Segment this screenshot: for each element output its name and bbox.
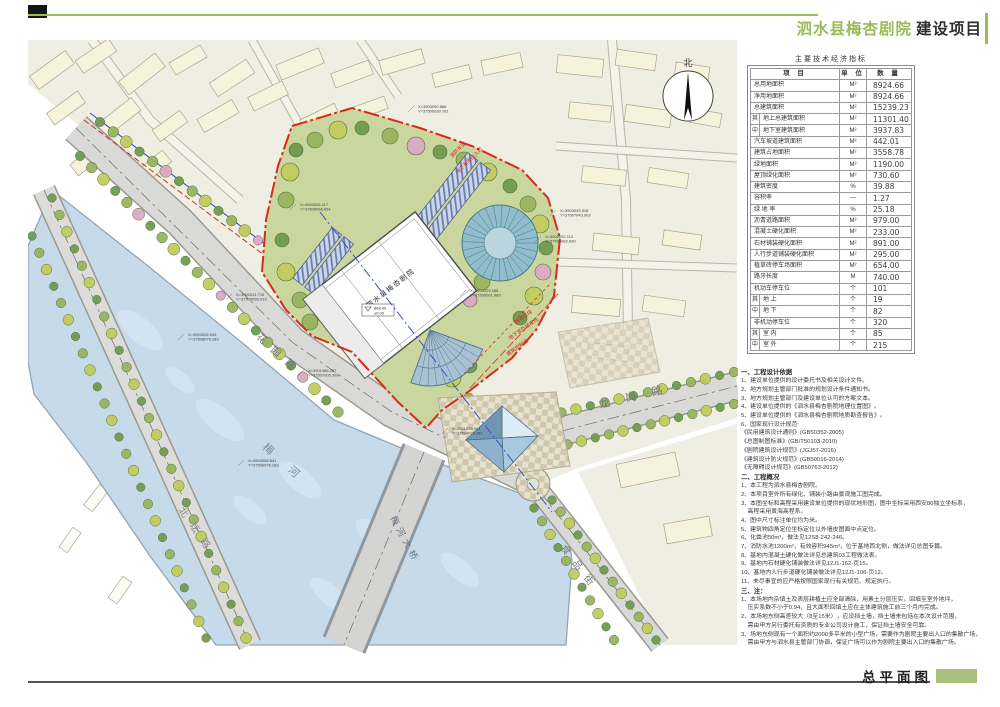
tree-icon xyxy=(530,504,539,513)
tree-icon xyxy=(180,584,189,593)
note-line: 1、本工程为泗水县梅杏剧院。 xyxy=(741,482,993,491)
table-row: 净用地面积M² 8924.66 xyxy=(751,91,912,102)
tree-icon xyxy=(144,413,154,423)
note-line: 6、化粪池50m³，做法见12S8-242-246。 xyxy=(741,534,993,543)
note-line: 3、本图坐标和高程采用建设单位提供的现状地形图，图中坐标采用西安80独立坐标系， xyxy=(741,500,993,509)
svg-text:Y=37507005.309: Y=37507005.309 xyxy=(308,373,339,378)
tree-icon xyxy=(181,256,190,265)
svg-text:Y=37506076.183: Y=37506076.183 xyxy=(248,463,279,468)
tree-icon xyxy=(78,349,88,359)
tree-icon xyxy=(187,186,198,197)
table-header-row: 项 目 单 位 数 量 xyxy=(751,69,912,80)
note-line: 5、建筑物四角定位坐标定位以外墙皮图面中点定位。 xyxy=(741,526,993,535)
tree-icon xyxy=(634,612,644,622)
item-cell: 地下室建筑面积 xyxy=(760,125,840,136)
unit-cell: M xyxy=(840,272,867,283)
unit-cell: M² xyxy=(840,136,867,147)
tree-icon xyxy=(137,483,146,492)
note-line: 需由甲方与泗水县主管部门协调，保证广场可以作为剧院主要出入口的集散广场。 xyxy=(741,639,993,648)
note-line: 7、消防水池1200m³，有效容积945m³，位于基地西北侧，做法详见总图专篇。 xyxy=(741,543,993,552)
table-row: 非机动停车位个 320 xyxy=(751,317,912,328)
tree-icon xyxy=(146,221,155,230)
building-parcel xyxy=(59,527,81,552)
col-qty: 数 量 xyxy=(867,69,912,80)
table-row: 其 室 内个 85 xyxy=(751,328,912,339)
qty-cell: 891.00 xyxy=(867,238,912,249)
unit-cell: 个 xyxy=(840,306,867,317)
indicator-table-title: 主要技术经济指标 xyxy=(747,54,915,64)
site-plan-map: 泗水县梅杏剧院 868.40 ±0.00 用地红线 地下室外墙皮线 建筑控制线 … xyxy=(28,40,738,685)
note-line: 《建筑设计防火规范》(GB50016-2014) xyxy=(741,456,993,465)
qty-cell: 730.60 xyxy=(867,170,912,181)
tree-icon xyxy=(618,426,629,437)
tree-icon xyxy=(167,464,177,474)
tree-icon xyxy=(652,636,661,645)
tree-icon xyxy=(93,295,102,304)
tree-icon xyxy=(77,261,87,271)
qty-cell: 740.00 xyxy=(867,272,912,283)
tree-icon xyxy=(202,634,211,643)
tree-icon xyxy=(227,302,238,313)
note-line: 3、场地东侧现有一个面积约2000多平米的小型广场，需要作为剧院主要出入口的集散… xyxy=(741,631,993,640)
tree-icon xyxy=(193,616,204,627)
tree-icon xyxy=(108,127,119,138)
svg-text:±0.00: ±0.00 xyxy=(374,311,385,316)
tree-icon xyxy=(75,151,84,160)
tree-icon xyxy=(729,399,738,409)
tree-icon xyxy=(216,291,225,300)
qty-cell: 25.18 xyxy=(867,204,912,215)
unit-cell: M² xyxy=(840,102,867,113)
tree-icon xyxy=(122,449,132,459)
note-line: 2、本场地东侧高差较大（8至15米），应设挡土墙，挡土墙未包括在本次设计范围， xyxy=(741,613,993,622)
table-row: 植草砖停车场面积M² 654.00 xyxy=(751,261,912,272)
tree-icon xyxy=(600,566,609,575)
qty-cell: 8924.66 xyxy=(867,80,912,91)
tree-icon xyxy=(602,623,611,632)
tree-icon xyxy=(85,365,96,376)
unit-cell: 个 xyxy=(840,317,867,328)
qty-cell: 233.00 xyxy=(867,227,912,238)
tree-icon xyxy=(322,396,331,405)
item-cell: 容积率 xyxy=(751,193,840,204)
svg-text:Y=37506082.930: Y=37506082.930 xyxy=(545,239,576,244)
tree-icon xyxy=(173,480,184,491)
note-line: 《无障碍设计规范》(GB50763-2012) xyxy=(741,464,993,473)
table-row: 绿地面积M² 1190.00 xyxy=(751,159,912,170)
qty-cell: 15239.23 xyxy=(867,102,912,113)
tree-icon xyxy=(593,608,604,619)
tree-icon xyxy=(520,196,536,212)
tree-icon xyxy=(591,434,600,443)
item-cell: 机动车停车位 xyxy=(751,283,840,294)
unit-cell: 个 xyxy=(840,294,867,305)
table-row: 汽车坡道建筑面积M² 442.01 xyxy=(751,136,912,147)
tree-icon xyxy=(574,531,583,540)
tree-icon xyxy=(35,248,45,258)
table-row: 总用地面积M² 8924.66 xyxy=(751,80,912,91)
unit-cell: M² xyxy=(840,148,867,159)
tree-icon xyxy=(158,533,167,542)
tree-icon xyxy=(50,282,59,291)
table-row: 其 地 上个 19 xyxy=(751,294,912,305)
tree-icon xyxy=(160,448,169,457)
tree-icon xyxy=(329,121,347,139)
note-line: 5、建设单位提供的《泗水县梅杏剧院地质勘查报告》。 xyxy=(741,412,993,421)
group-cell: 中 xyxy=(751,306,760,317)
footer-rule xyxy=(28,681,930,683)
tree-icon xyxy=(55,210,65,220)
tree-icon xyxy=(199,195,211,207)
tree-icon xyxy=(106,328,117,339)
svg-text:Y=37504023.381: Y=37504023.381 xyxy=(452,431,483,436)
note-line: 1、本场地内杂填土及表层耕植土应全部清除，用素土分层压实，回填至室外地坪， xyxy=(741,596,993,605)
tree-icon xyxy=(253,236,262,245)
project-title-suffix: 建设项目 xyxy=(916,21,982,38)
note-heading: 一、工程设计依据 xyxy=(741,368,993,377)
project-title-name: 泗水县梅杏剧院 xyxy=(796,21,912,38)
item-cell: 建筑密度 xyxy=(751,181,840,192)
tree-icon xyxy=(239,225,251,237)
table-row: 沥青道路面积M² 979.00 xyxy=(751,215,912,226)
tree-icon xyxy=(122,362,132,372)
tree-icon xyxy=(626,601,635,610)
tree-icon xyxy=(41,264,52,275)
group-cell: 其 xyxy=(751,328,760,339)
unit-cell: 个 xyxy=(840,283,867,294)
tree-icon xyxy=(278,192,294,208)
qty-cell: 3937.83 xyxy=(867,125,912,136)
group-cell: 中 xyxy=(751,340,760,351)
tree-icon xyxy=(98,173,110,185)
tree-icon xyxy=(537,516,547,526)
qty-cell: 295.00 xyxy=(867,249,912,260)
note-line: 《总图制图标准》(GB/T50103-2010) xyxy=(741,438,993,447)
qty-cell: 85 xyxy=(867,328,912,339)
group-cell: 其 xyxy=(751,294,760,305)
item-cell: 地上总建筑面积 xyxy=(760,114,840,125)
tree-icon xyxy=(571,404,582,415)
group-cell: 其 xyxy=(751,114,760,125)
tree-icon xyxy=(187,600,197,610)
tree-icon xyxy=(241,633,252,644)
tree-icon xyxy=(307,132,323,148)
table-row: 绿 地 率% 25.18 xyxy=(751,204,912,215)
group-cell: 中 xyxy=(751,125,760,136)
unit-cell: M² xyxy=(840,170,867,181)
tree-icon xyxy=(503,179,517,193)
title-end-rule xyxy=(985,13,988,44)
drawing-title: 总平面图 xyxy=(820,666,932,686)
tree-icon xyxy=(700,373,711,384)
qty-cell: 8924.66 xyxy=(867,91,912,102)
tree-icon xyxy=(227,600,236,609)
project-title: 泗水县梅杏剧院建设项目 xyxy=(796,17,982,39)
tree-icon xyxy=(48,194,57,203)
note-heading: 二、工程概况 xyxy=(741,473,993,482)
qty-cell: 82 xyxy=(867,306,912,317)
tree-icon xyxy=(556,507,566,517)
qty-cell: 1190.00 xyxy=(867,159,912,170)
table-row: 石材铺装硬化面积M² 891.00 xyxy=(751,238,912,249)
note-line: 2、地方规划主管部门批准的规划设计条件通知书。 xyxy=(741,386,993,395)
table-row: 机动车停车位个 101 xyxy=(751,283,912,294)
tree-icon xyxy=(70,245,79,254)
svg-text:Y=37506030.781: Y=37506030.781 xyxy=(418,109,449,114)
unit-cell: — xyxy=(840,193,867,204)
qty-cell: 3558.78 xyxy=(867,148,912,159)
table-row: 混凝土硬化面积M² 233.00 xyxy=(751,227,912,238)
tree-icon xyxy=(309,383,321,395)
qty-cell: 11301.40 xyxy=(867,114,912,125)
note-line: 11、未尽事宜的应严格按照国家现行有关规范、规定执行。 xyxy=(741,578,993,587)
note-line: 10、基地内人行步道硬化铺装做法详见12J1-106-页12。 xyxy=(741,569,993,578)
tree-icon xyxy=(211,566,221,576)
tree-icon xyxy=(234,616,244,626)
tree-icon xyxy=(716,403,725,412)
tree-icon xyxy=(135,147,144,156)
unit-cell: % xyxy=(840,181,867,192)
item-cell: 总用地面积 xyxy=(751,80,840,91)
note-line: 《民用建筑设计通则》(GB50352-2005) xyxy=(741,429,993,438)
item-cell: 非机动停车位 xyxy=(751,317,840,328)
unit-cell: M² xyxy=(840,215,867,226)
qty-cell: 19 xyxy=(867,294,912,305)
svg-text:Y=37506061.089: Y=37506061.089 xyxy=(470,293,501,298)
table-row: 中 室 外个 215 xyxy=(751,340,912,351)
unit-cell: M² xyxy=(840,91,867,102)
tree-icon xyxy=(433,145,447,159)
tree-icon xyxy=(100,399,110,409)
tree-icon xyxy=(582,542,592,552)
tree-icon xyxy=(355,121,369,135)
title-rule xyxy=(28,14,818,16)
tree-icon xyxy=(111,186,120,195)
table-row: 路牙长度M 740.00 xyxy=(751,272,912,283)
tree-icon xyxy=(165,550,175,560)
note-line: 8、基地内混凝土硬化做法详见总建筑03工程做法表。 xyxy=(741,552,993,561)
indicator-table: 项 目 单 位 数 量 总用地面积M² 8924.66净用地面积M² 8924.… xyxy=(747,65,915,354)
notes-block: 一、工程设计依据1、建设单位提供的设计委托书及相关设计文件。2、地方规划主管部门… xyxy=(741,368,993,648)
qty-cell: 320 xyxy=(867,317,912,328)
tree-icon xyxy=(545,529,556,540)
tree-icon xyxy=(659,416,670,427)
table-row: 建筑占地面积M² 3558.78 xyxy=(751,148,912,159)
tree-icon xyxy=(604,430,614,440)
item-cell: 室 外 xyxy=(760,340,840,351)
tree-icon xyxy=(147,156,158,167)
table-row: 屋顶绿化面积M² 730.60 xyxy=(751,170,912,181)
tree-icon xyxy=(715,371,724,380)
item-cell: 石材铺装硬化面积 xyxy=(751,238,840,249)
tree-icon xyxy=(128,465,139,476)
tree-icon xyxy=(84,277,95,288)
tree-icon xyxy=(729,367,738,377)
tree-icon xyxy=(115,433,124,442)
qty-cell: 654.00 xyxy=(867,261,912,272)
note-line: 2、本项目室外所有绿化、铺装小路由景观施工图完成。 xyxy=(741,491,993,500)
tree-icon xyxy=(281,163,299,181)
tree-icon xyxy=(548,496,557,505)
note-heading: 三、注： xyxy=(741,587,993,596)
note-line: 9、基地内石材硬化铺装做法详见12J1-162-页15。 xyxy=(741,560,993,569)
tree-icon xyxy=(576,436,587,447)
note-line: 6、国家现行设计规范: xyxy=(741,421,993,430)
tree-icon xyxy=(129,379,140,390)
item-cell: 绿 地 率 xyxy=(751,204,840,215)
tree-icon xyxy=(564,518,575,529)
item-cell: 绿地面积 xyxy=(751,159,840,170)
tree-icon xyxy=(86,162,97,173)
item-cell: 地 下 xyxy=(760,306,840,317)
svg-text:Y=37506066.694: Y=37506066.694 xyxy=(300,207,331,212)
unit-cell: M² xyxy=(840,238,867,249)
building-parcel xyxy=(108,576,132,604)
tree-icon xyxy=(62,226,73,237)
note-line: 需由甲方另行委托有资质的专业公司设计施工，保证挡土墙安全可靠。 xyxy=(741,622,993,631)
tree-icon xyxy=(275,233,289,247)
tree-icon xyxy=(106,415,117,426)
unit-cell: M² xyxy=(840,114,867,125)
table-row: 容积率— 1.27 xyxy=(751,193,912,204)
unit-cell: M² xyxy=(840,80,867,91)
table-row: 其 地上总建筑面积M² 11301.40 xyxy=(751,114,912,125)
note-line: 1、建设单位提供的设计委托书及相关设计文件。 xyxy=(741,377,993,386)
item-cell: 植草砖停车场面积 xyxy=(751,261,840,272)
qty-cell: 979.00 xyxy=(867,215,912,226)
tree-icon xyxy=(99,312,109,322)
tree-icon xyxy=(642,623,653,634)
tree-icon xyxy=(382,128,398,144)
tree-icon xyxy=(133,208,145,220)
item-cell: 沥青道路面积 xyxy=(751,215,840,226)
unit-cell: M² xyxy=(840,261,867,272)
unit-cell: M² xyxy=(840,249,867,260)
table-row: 建筑密度% 39.88 xyxy=(751,181,912,192)
tree-icon xyxy=(95,117,104,126)
svg-text:Y=37507043.903: Y=37507043.903 xyxy=(560,213,591,218)
note-line: 《剧院建筑设计规范》(JGJ57-2016) xyxy=(741,447,993,456)
footer-green-bar xyxy=(936,669,977,683)
tree-icon xyxy=(289,143,303,157)
tree-icon xyxy=(333,407,344,418)
tree-icon xyxy=(143,499,153,509)
table-row: 人行步道铺装硬化面积M² 295.00 xyxy=(751,249,912,260)
svg-text:Y=37508076.183: Y=37508076.183 xyxy=(188,337,219,342)
item-cell: 混凝土硬化面积 xyxy=(751,227,840,238)
item-cell: 路牙长度 xyxy=(751,272,840,283)
tree-icon xyxy=(218,582,229,593)
unit-cell: M² xyxy=(840,159,867,170)
unit-cell: M² xyxy=(840,125,867,136)
table-row: 中 地 下个 82 xyxy=(751,306,912,317)
tree-icon xyxy=(157,232,168,243)
item-cell: 净用地面积 xyxy=(751,91,840,102)
tree-icon xyxy=(688,409,698,419)
tree-icon xyxy=(203,278,215,290)
item-cell: 建筑占地面积 xyxy=(751,148,840,159)
item-cell: 汽车坡道建筑面积 xyxy=(751,136,840,147)
tree-icon xyxy=(115,346,124,355)
tree-icon xyxy=(71,332,80,341)
tree-icon xyxy=(122,197,133,208)
qty-cell: 101 xyxy=(867,283,912,294)
tree-icon xyxy=(174,177,183,186)
tree-icon xyxy=(609,635,619,645)
item-cell: 总建筑面积 xyxy=(751,102,840,113)
tree-icon xyxy=(192,267,203,278)
tree-icon xyxy=(701,405,712,416)
tree-icon xyxy=(168,243,180,255)
tree-icon xyxy=(172,566,183,577)
item-cell: 地 上 xyxy=(760,294,840,305)
note-line: 3、地方规划主管部门及建设单位认可的方案文本。 xyxy=(741,395,993,404)
qty-cell: 215 xyxy=(867,340,912,351)
tree-icon xyxy=(674,413,683,422)
tree-icon xyxy=(238,313,250,325)
tree-icon xyxy=(277,263,295,281)
col-item: 项 目 xyxy=(751,69,840,80)
item-cell: 屋顶绿化面积 xyxy=(751,170,840,181)
tree-icon xyxy=(160,165,172,177)
tree-icon xyxy=(214,206,223,215)
tree-icon xyxy=(608,577,618,587)
svg-text:Y=37506065.913: Y=37506065.913 xyxy=(236,297,267,302)
tree-icon xyxy=(226,215,237,226)
note-line: 压实系数不小于0.94，且大面积回填土应在主体建筑施工前三个月内完成。 xyxy=(741,604,993,613)
qty-cell: 1.27 xyxy=(867,193,912,204)
tree-icon xyxy=(151,430,162,441)
round-theatre-feature xyxy=(462,205,538,281)
tree-icon xyxy=(585,596,595,606)
table-row: 中 地下室建筑面积M² 3937.83 xyxy=(751,125,912,136)
item-cell: 人行步道铺装硬化面积 xyxy=(751,249,840,260)
north-label: 北 xyxy=(683,58,692,68)
tree-icon xyxy=(28,232,36,241)
note-line: 高程采用黄海高程系。 xyxy=(741,508,993,517)
tree-icon xyxy=(535,264,551,280)
col-unit: 单 位 xyxy=(840,69,867,80)
tree-icon xyxy=(63,314,74,325)
tree-icon xyxy=(616,588,627,599)
tree-icon xyxy=(590,553,601,564)
tree-icon xyxy=(646,420,656,430)
qty-cell: 442.01 xyxy=(867,136,912,147)
elevation-marker: 868.40 ±0.00 xyxy=(362,304,394,316)
tree-icon xyxy=(150,515,161,526)
note-line: 4、建设单位提供的《泗水县梅杏剧院地理位置图》。 xyxy=(741,403,993,412)
sheet-corner-mark xyxy=(28,5,47,18)
tree-icon xyxy=(586,402,595,411)
unit-cell: 个 xyxy=(840,340,867,351)
tree-icon xyxy=(137,397,146,406)
table-row: 总建筑面积M² 15239.23 xyxy=(751,102,912,113)
tree-icon xyxy=(525,287,543,305)
unit-cell: 个 xyxy=(840,328,867,339)
tree-icon xyxy=(120,136,132,148)
note-line: 4、图中尺寸标注单位均为米。 xyxy=(741,517,993,526)
tree-icon xyxy=(633,423,642,432)
item-cell: 室 内 xyxy=(760,328,840,339)
tree-icon xyxy=(407,137,425,155)
qty-cell: 39.88 xyxy=(867,181,912,192)
tree-icon xyxy=(686,377,696,387)
tree-icon xyxy=(93,383,102,392)
tree-icon xyxy=(56,298,66,308)
unit-cell: % xyxy=(840,204,867,215)
unit-cell: M² xyxy=(840,227,867,238)
